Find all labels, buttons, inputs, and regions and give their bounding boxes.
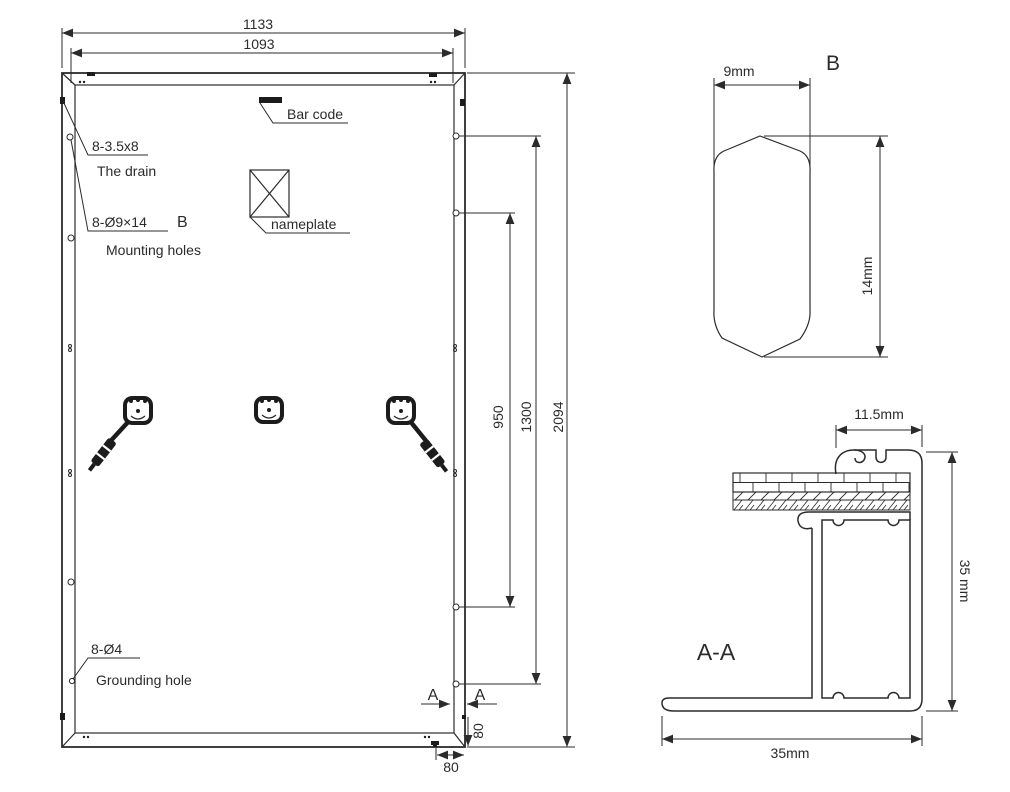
detail-b: B 9mm 14mm bbox=[714, 52, 888, 357]
dim-14mm-text: 14mm bbox=[859, 257, 875, 296]
mounting-hole-shape bbox=[714, 136, 810, 357]
mc4-connector-left bbox=[86, 437, 117, 473]
encapsulant-layer bbox=[733, 492, 910, 500]
frame-cavity bbox=[822, 520, 910, 698]
drain-spec: 8-3.5x8 bbox=[92, 138, 139, 154]
section-marker-left: A bbox=[428, 687, 439, 704]
rear-view: Bar code nameplate 8-3.5x8 The drain 8-Ø… bbox=[60, 16, 575, 775]
nameplate-label: nameplate bbox=[271, 216, 337, 232]
barcode-label: Bar code bbox=[287, 106, 343, 122]
clamp-curl bbox=[835, 450, 865, 474]
technical-drawing-page: Bar code nameplate 8-3.5x8 The drain 8-Ø… bbox=[0, 0, 1010, 792]
mounting-detail-ref: B bbox=[177, 214, 188, 231]
section-dim-height: 35 mm bbox=[926, 452, 973, 711]
dim-1300-text: 1300 bbox=[518, 401, 534, 432]
laminate-stack bbox=[733, 473, 910, 510]
detail-b-title: B bbox=[826, 52, 840, 75]
dim-9mm-text: 9mm bbox=[723, 63, 754, 79]
junction-box-left bbox=[86, 398, 151, 473]
dim-11-5mm-text: 11.5mm bbox=[854, 406, 904, 422]
barcode: Bar code bbox=[259, 97, 348, 123]
drain-label: The drain bbox=[97, 163, 156, 179]
drain-callout: 8-3.5x8 The drain bbox=[63, 101, 156, 179]
dim-width-inner: 1093 bbox=[71, 36, 453, 83]
junction-box-right bbox=[388, 398, 450, 474]
nameplate: nameplate bbox=[250, 170, 350, 233]
grounding-callout: 8-Ø4 Grounding hole bbox=[73, 641, 192, 688]
section-marker-right: A bbox=[475, 687, 486, 704]
barcode-mark bbox=[259, 97, 282, 103]
dim-2094-text: 2094 bbox=[550, 401, 566, 432]
dim-950-text: 950 bbox=[490, 405, 506, 429]
backsheet-layer bbox=[733, 500, 910, 510]
mounting-callout: 8-Ø9×14 B Mounting holes bbox=[71, 140, 201, 258]
dim-80-vertical: 80 bbox=[470, 723, 486, 739]
mounting-spec: 8-Ø9×14 bbox=[92, 214, 147, 230]
grounding-spec: 8-Ø4 bbox=[91, 641, 122, 657]
dim-1093-text: 1093 bbox=[243, 36, 274, 52]
section-aa: A-A 11.5mm 35 mm 35mm bbox=[662, 406, 973, 761]
dim-1133-text: 1133 bbox=[243, 16, 273, 32]
clamp-top bbox=[854, 450, 922, 463]
junction-box-middle bbox=[256, 398, 282, 422]
section-cut-markers: A A 80 80 bbox=[421, 687, 497, 775]
section-dim-width: 35mm bbox=[662, 716, 922, 761]
dim-right-side: 950 1300 2094 bbox=[459, 73, 575, 747]
dim-35mm-right-text: 35 mm bbox=[957, 560, 973, 603]
grounding-hole bbox=[69, 678, 74, 683]
dim-35mm-bottom-text: 35mm bbox=[771, 745, 810, 761]
mounting-label: Mounting holes bbox=[106, 242, 201, 258]
glass-layer bbox=[733, 473, 910, 492]
dim-80-horizontal: 80 bbox=[443, 759, 459, 775]
section-dim-clamp: 11.5mm bbox=[836, 406, 922, 448]
solar-panel-drawing: Bar code nameplate 8-3.5x8 The drain 8-Ø… bbox=[0, 0, 1010, 792]
section-aa-title: A-A bbox=[697, 639, 736, 665]
grounding-label: Grounding hole bbox=[96, 672, 192, 688]
mc4-connector-right bbox=[419, 438, 450, 474]
